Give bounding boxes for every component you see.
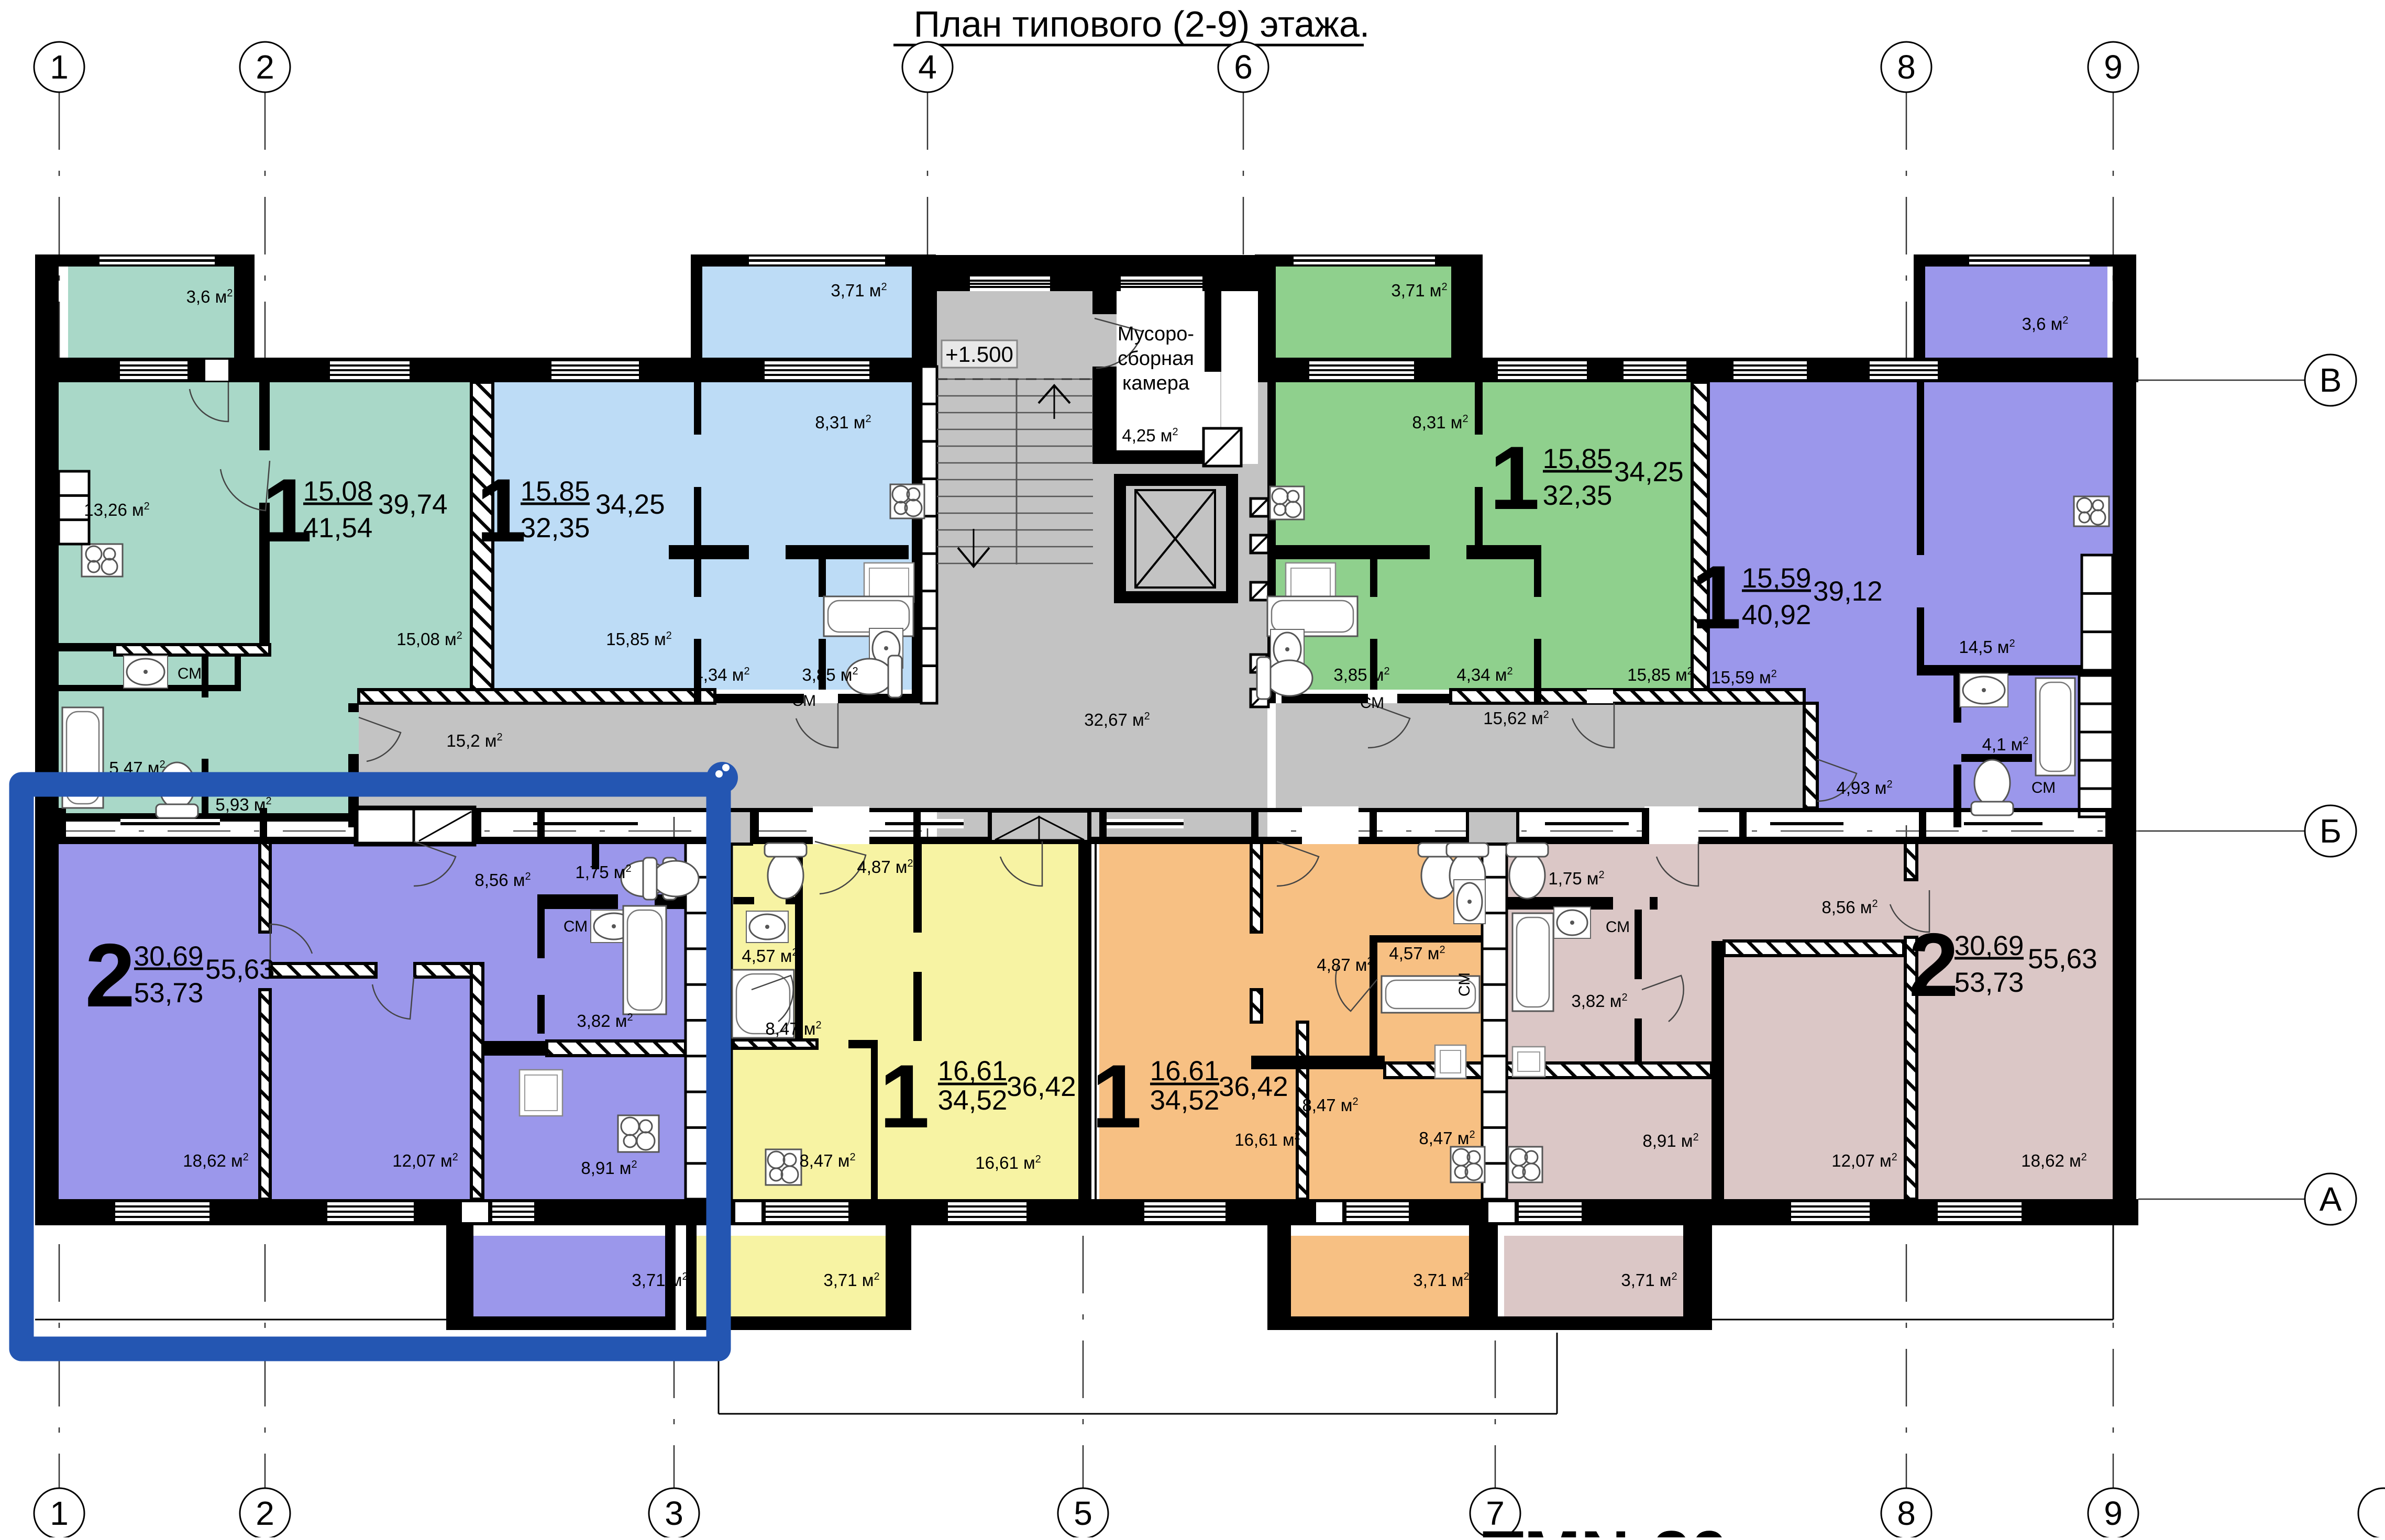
svg-text:1: 1 <box>50 1494 69 1532</box>
svg-text:Мусоро-: Мусоро- <box>1118 323 1194 345</box>
svg-text:3: 3 <box>665 1494 683 1532</box>
svg-text:8,91 м2: 8,91 м2 <box>1642 1131 1698 1150</box>
svg-text:53,73: 53,73 <box>134 978 204 1009</box>
svg-text:СМ: СМ <box>792 692 816 710</box>
svg-text:8,47 м2: 8,47 м2 <box>1419 1128 1475 1148</box>
svg-text:30,69: 30,69 <box>1955 930 2024 961</box>
svg-text:4,57 м2: 4,57 м2 <box>742 946 798 966</box>
svg-text:8,47 м2: 8,47 м2 <box>1302 1095 1358 1115</box>
svg-text:3,6 м2: 3,6 м2 <box>2022 314 2069 334</box>
svg-text:16,61: 16,61 <box>1150 1056 1220 1087</box>
svg-text:3,82 м2: 3,82 м2 <box>1571 991 1627 1011</box>
svg-text:3,85 м2: 3,85 м2 <box>1333 665 1389 684</box>
svg-text:34,25: 34,25 <box>1614 457 1684 488</box>
svg-text:8,47 м2: 8,47 м2 <box>765 1019 821 1038</box>
svg-text:40,92: 40,92 <box>1742 600 1812 630</box>
svg-text:16,61 м2: 16,61 м2 <box>1234 1130 1300 1149</box>
svg-text:План типового (2-9) этажа.: План типового (2-9) этажа. <box>914 4 1370 45</box>
svg-text:8,47 м2: 8,47 м2 <box>799 1151 855 1170</box>
svg-text:15,62 м2: 15,62 м2 <box>1483 708 1549 728</box>
svg-text:34,52: 34,52 <box>938 1085 1008 1116</box>
svg-text:4: 4 <box>918 48 937 86</box>
svg-text:32,35: 32,35 <box>521 513 590 544</box>
svg-text:9: 9 <box>2104 1494 2123 1532</box>
svg-text:41,54: 41,54 <box>303 513 373 544</box>
svg-text:36,42: 36,42 <box>1007 1071 1076 1102</box>
svg-text:камера: камера <box>1122 372 1190 394</box>
svg-text:6: 6 <box>1234 48 1253 86</box>
svg-text:13,26 м2: 13,26 м2 <box>84 500 150 519</box>
svg-text:55,63: 55,63 <box>2028 944 2097 974</box>
svg-text:1: 1 <box>50 48 69 86</box>
svg-text:3,82 м2: 3,82 м2 <box>577 1011 633 1031</box>
svg-text:3,71 м2: 3,71 м2 <box>1621 1270 1677 1290</box>
svg-text:ТМN-20: ТМN-20 <box>1482 1516 1728 1537</box>
svg-text:СМ: СМ <box>1360 694 1384 712</box>
svg-text:1,75 м2: 1,75 м2 <box>1548 869 1604 888</box>
svg-text:15,59: 15,59 <box>1742 563 1812 594</box>
svg-text:8,56 м2: 8,56 м2 <box>474 870 531 890</box>
svg-text:4,87 м2: 4,87 м2 <box>857 857 913 877</box>
svg-text:30,69: 30,69 <box>134 941 204 972</box>
svg-text:18,62 м2: 18,62 м2 <box>183 1151 249 1170</box>
svg-text:СМ: СМ <box>1606 918 1630 936</box>
svg-text:8,31 м2: 8,31 м2 <box>815 413 871 432</box>
svg-text:2: 2 <box>256 48 274 86</box>
svg-text:3,71 м2: 3,71 м2 <box>1391 281 1447 300</box>
svg-text:8: 8 <box>1897 1494 1916 1532</box>
svg-text:3,71 м2: 3,71 м2 <box>831 281 887 300</box>
svg-text:8,91 м2: 8,91 м2 <box>581 1158 637 1178</box>
svg-text:3,71 м2: 3,71 м2 <box>1413 1270 1469 1290</box>
svg-text:16,61: 16,61 <box>938 1056 1008 1087</box>
svg-text:3,71 м2: 3,71 м2 <box>823 1270 879 1290</box>
svg-text:4,1 м2: 4,1 м2 <box>1982 735 2029 754</box>
svg-text:34,52: 34,52 <box>1150 1085 1220 1116</box>
svg-text:2: 2 <box>85 925 135 1026</box>
svg-text:8,56 м2: 8,56 м2 <box>1821 898 1878 917</box>
svg-text:12,07 м2: 12,07 м2 <box>1831 1151 1897 1170</box>
svg-text:39,12: 39,12 <box>1813 576 1883 607</box>
svg-text:4,34 м2: 4,34 м2 <box>693 665 749 684</box>
svg-text:4,34 м2: 4,34 м2 <box>1456 665 1512 684</box>
svg-text:4,57 м2: 4,57 м2 <box>1389 944 1445 963</box>
svg-text:1: 1 <box>1091 1046 1142 1147</box>
svg-text:+1.500: +1.500 <box>945 342 1013 367</box>
svg-text:1: 1 <box>1489 428 1540 528</box>
svg-text:В: В <box>2320 361 2342 399</box>
svg-text:15,85: 15,85 <box>1543 444 1613 474</box>
svg-text:1,75 м2: 1,75 м2 <box>575 862 631 882</box>
svg-text:15,2 м2: 15,2 м2 <box>446 731 502 750</box>
svg-text:15,59 м2: 15,59 м2 <box>1711 668 1777 687</box>
svg-text:15,08: 15,08 <box>303 476 373 507</box>
svg-text:3,6 м2: 3,6 м2 <box>186 287 233 306</box>
svg-text:2: 2 <box>256 1494 274 1532</box>
svg-text:53,73: 53,73 <box>1955 967 2024 998</box>
svg-text:СМ: СМ <box>2031 779 2056 796</box>
svg-text:2: 2 <box>1908 915 1959 1015</box>
svg-text:34,25: 34,25 <box>595 489 665 520</box>
svg-text:1: 1 <box>476 460 526 561</box>
svg-text:15,85 м2: 15,85 м2 <box>606 629 672 649</box>
svg-text:5,93 м2: 5,93 м2 <box>215 795 271 814</box>
svg-text:32,67 м2: 32,67 м2 <box>1084 710 1150 729</box>
svg-text:1: 1 <box>1691 547 1741 648</box>
svg-text:18,62 м2: 18,62 м2 <box>2021 1151 2087 1170</box>
svg-text:Б: Б <box>2320 812 2342 850</box>
svg-text:15,85: 15,85 <box>521 476 590 507</box>
svg-text:сборная: сборная <box>1118 348 1194 370</box>
svg-text:4,25 м2: 4,25 м2 <box>1122 426 1178 445</box>
svg-text:8,31 м2: 8,31 м2 <box>1412 413 1468 432</box>
svg-text:3,85 м2: 3,85 м2 <box>802 665 858 684</box>
svg-text:5: 5 <box>1074 1494 1092 1532</box>
svg-text:1: 1 <box>262 460 312 561</box>
svg-text:4,93 м2: 4,93 м2 <box>1836 778 1892 797</box>
svg-text:32,35: 32,35 <box>1543 480 1613 511</box>
svg-text:СМ: СМ <box>564 918 588 935</box>
svg-text:СМ: СМ <box>1456 972 1473 996</box>
svg-text:12,07 м2: 12,07 м2 <box>392 1151 458 1170</box>
svg-text:1: 1 <box>879 1046 930 1147</box>
svg-text:15,85 м2: 15,85 м2 <box>1627 665 1693 684</box>
svg-text:16,61 м2: 16,61 м2 <box>975 1153 1041 1172</box>
svg-text:15,08 м2: 15,08 м2 <box>396 629 462 649</box>
svg-text:39,74: 39,74 <box>378 489 448 520</box>
svg-text:55,63: 55,63 <box>205 954 275 985</box>
svg-text:А: А <box>2320 1180 2342 1218</box>
svg-text:3,71 м2: 3,71 м2 <box>632 1270 688 1290</box>
svg-text:8: 8 <box>1897 48 1916 86</box>
svg-text:СМ: СМ <box>178 665 202 682</box>
svg-text:14,5 м2: 14,5 м2 <box>1959 637 2015 657</box>
svg-text:36,42: 36,42 <box>1219 1071 1288 1102</box>
svg-text:9: 9 <box>2104 48 2123 86</box>
svg-text:4,87 м2: 4,87 м2 <box>1317 955 1373 974</box>
